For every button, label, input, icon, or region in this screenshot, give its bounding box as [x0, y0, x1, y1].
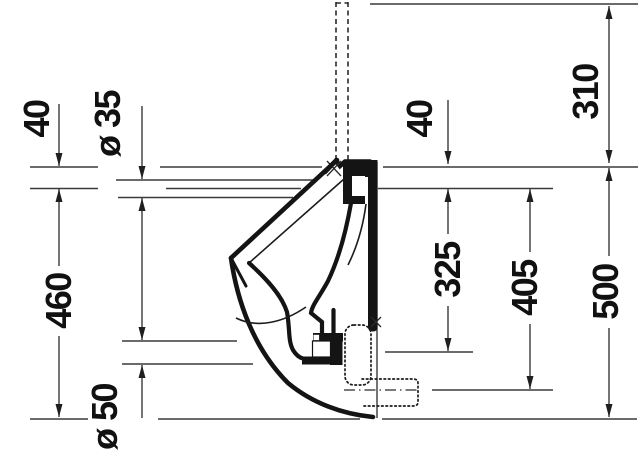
- technical-drawing-page: 40 ø 35 460 ø 50 40 325 405 500 310: [0, 0, 640, 455]
- flush-pipe-hidden: [336, 2, 348, 165]
- inlet-recess: [352, 176, 365, 196]
- dim-label-dia-35: ø 35: [87, 90, 128, 158]
- drain-assembly: [302, 333, 343, 365]
- drain-outlet-hidden: [344, 317, 420, 406]
- urinal-section: [231, 160, 378, 417]
- dim-label-310: 310: [565, 64, 606, 120]
- dim-label-405: 405: [504, 259, 545, 316]
- dim-label-40-left: 40: [16, 100, 57, 138]
- dim-label-460: 460: [38, 273, 79, 329]
- dim-label-325: 325: [427, 241, 468, 298]
- dim-label-dia-50: ø 50: [84, 384, 125, 451]
- dim-label-500: 500: [585, 264, 626, 320]
- urinal-installation-drawing: 40 ø 35 460 ø 50 40 325 405 500 310: [0, 0, 640, 455]
- dim-label-40-right: 40: [399, 100, 440, 138]
